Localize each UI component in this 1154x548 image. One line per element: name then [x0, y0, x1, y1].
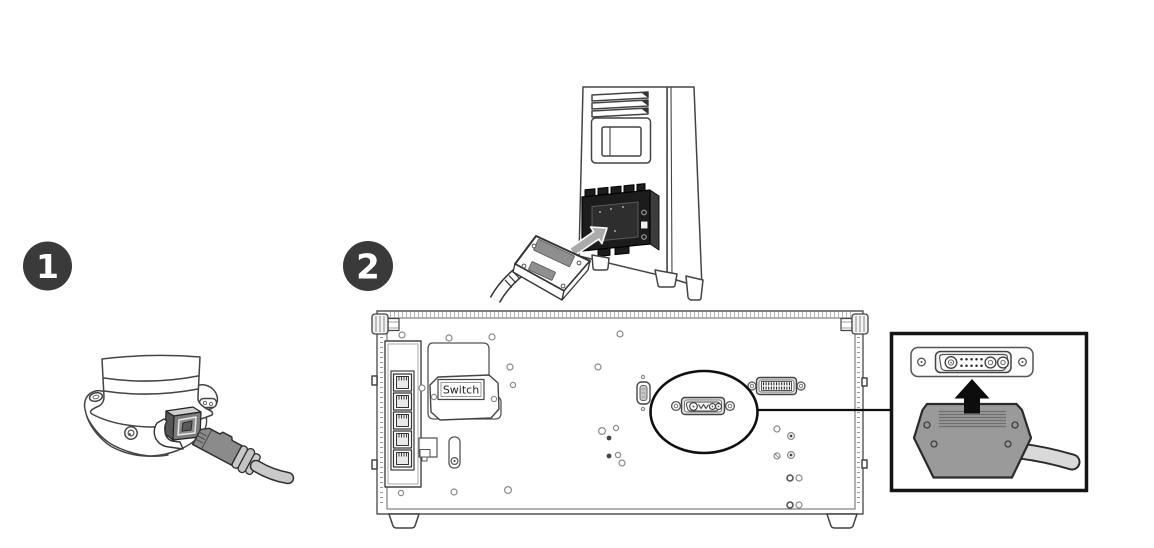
robot-base-figure	[85, 355, 288, 478]
rack-foot-left	[389, 514, 419, 528]
receptacle-connector	[936, 352, 1012, 373]
step-2-section: 2	[343, 87, 1087, 528]
ethernet-port	[394, 374, 412, 391]
tower-foot-1	[592, 255, 609, 270]
ethernet-port	[394, 431, 412, 448]
ethernet-port	[394, 393, 412, 410]
tower-foot-3	[686, 276, 703, 300]
io-dsub-connector	[748, 378, 805, 395]
combo-dsub-connector	[672, 398, 735, 415]
step-1-section: 1	[23, 242, 288, 479]
plug-cable	[256, 466, 288, 478]
base-jack-connector	[165, 407, 201, 440]
ethernet-port	[394, 450, 412, 467]
ethernet-panel	[385, 341, 421, 487]
ethernet-port	[394, 412, 412, 429]
controller-tower-figure	[495, 87, 703, 300]
mini-connector	[637, 382, 650, 404]
step-number: 2	[356, 248, 380, 288]
step-2-badge: 2	[343, 241, 393, 291]
receptacle-plate	[911, 348, 1033, 377]
connector-hood	[914, 404, 1031, 478]
step-number: 1	[36, 247, 59, 286]
installation-diagram: 1	[0, 0, 1154, 548]
accessory-box	[419, 438, 437, 461]
step-1-badge: 1	[23, 242, 72, 291]
tower-handle	[592, 118, 651, 163]
toggle-slot	[449, 437, 460, 468]
switch-label: Switch	[443, 384, 479, 397]
rack-unit-figure: Switch	[372, 311, 891, 528]
inset-detail-box	[892, 334, 1087, 491]
tower-vents	[592, 92, 648, 117]
hood-cable	[1020, 451, 1072, 462]
mounting-screw-front	[125, 427, 137, 439]
rack-foot-right	[827, 514, 857, 528]
